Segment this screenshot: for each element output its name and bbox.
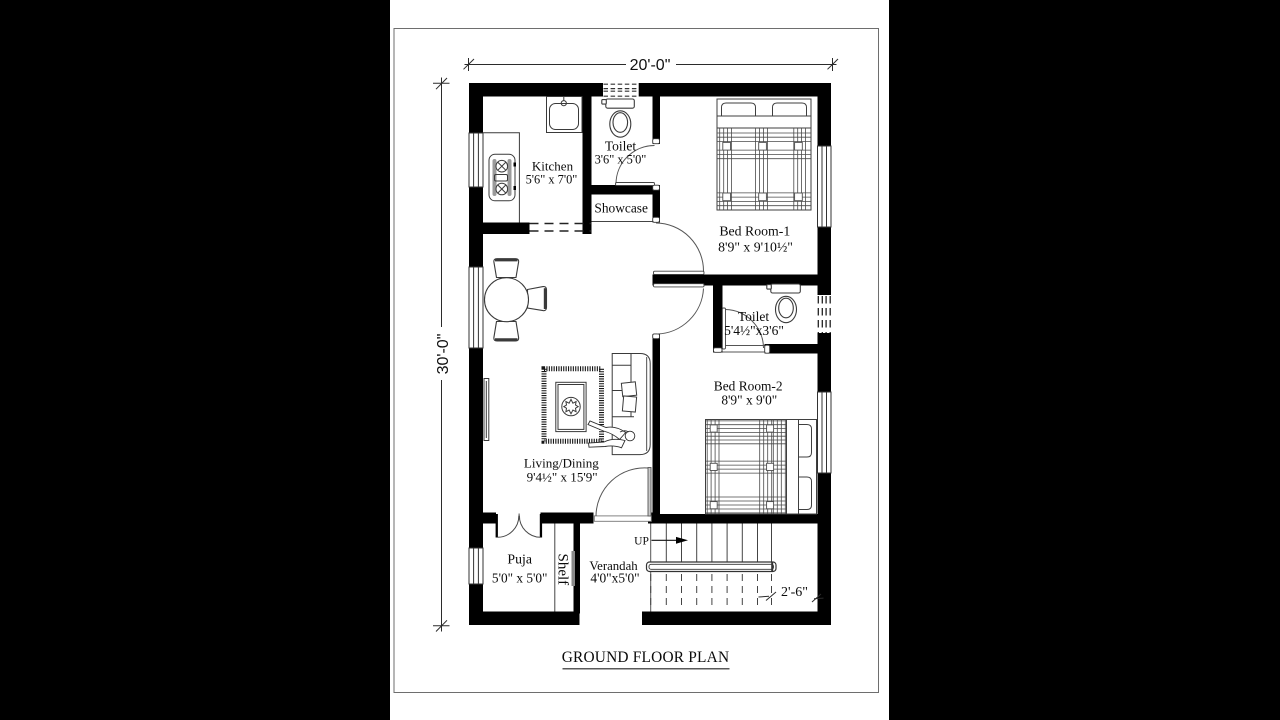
svg-text:Living/Dining: Living/Dining	[524, 456, 599, 471]
svg-text:UP: UP	[634, 536, 649, 548]
svg-text:Kitchen: Kitchen	[532, 159, 574, 174]
svg-text:20'-0": 20'-0"	[630, 57, 671, 74]
svg-text:Showcase: Showcase	[594, 200, 648, 215]
svg-text:9'4½" x 15'9": 9'4½" x 15'9"	[527, 470, 598, 485]
svg-text:8'9" x 9'10½": 8'9" x 9'10½"	[718, 240, 793, 255]
svg-text:4'0"x5'0": 4'0"x5'0"	[590, 571, 639, 586]
svg-text:Bed Room-2: Bed Room-2	[714, 379, 783, 394]
svg-text:5'0" x 5'0": 5'0" x 5'0"	[492, 571, 548, 586]
svg-text:GROUND FLOOR PLAN: GROUND FLOOR PLAN	[562, 649, 730, 666]
svg-text:5'6" x 7'0": 5'6" x 7'0"	[526, 173, 578, 187]
svg-text:5'4½"x3'6": 5'4½"x3'6"	[724, 323, 784, 338]
svg-text:Toilet: Toilet	[738, 309, 770, 324]
svg-text:8'9" x 9'0": 8'9" x 9'0"	[721, 393, 777, 408]
svg-text:3'6" x 5'0": 3'6" x 5'0"	[595, 152, 647, 166]
svg-text:Puja: Puja	[507, 552, 532, 567]
svg-text:2'-6": 2'-6"	[781, 585, 808, 600]
svg-text:Shelf: Shelf	[555, 553, 571, 585]
svg-text:30'-0": 30'-0"	[435, 334, 452, 375]
svg-text:Bed Room-1: Bed Room-1	[719, 224, 790, 239]
